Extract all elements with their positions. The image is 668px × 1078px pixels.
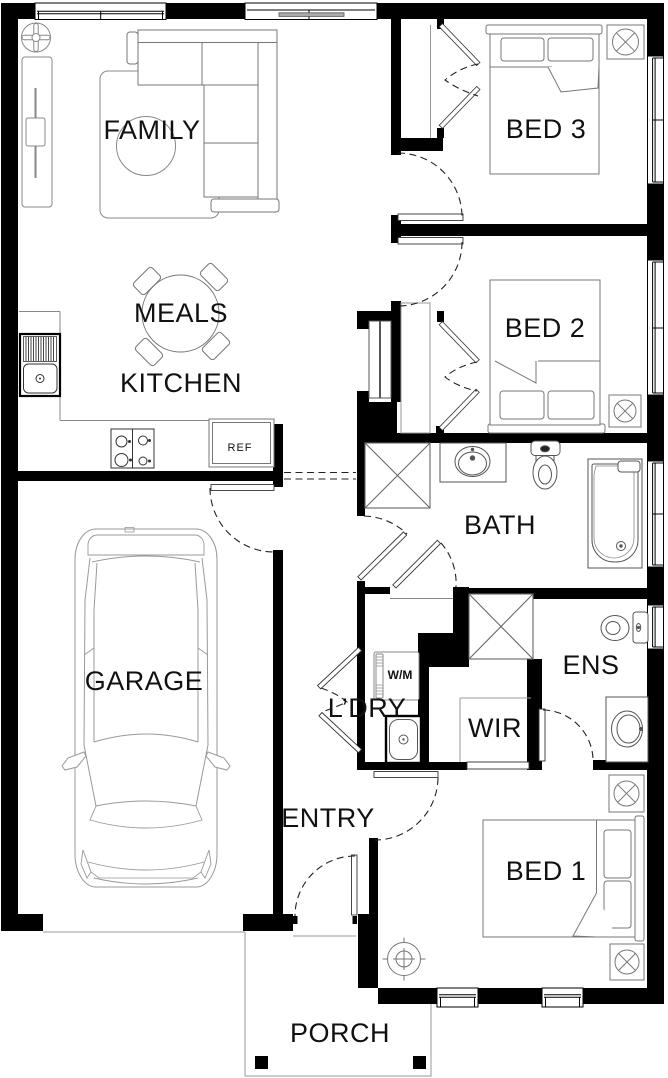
svg-text:GARAGE: GARAGE	[85, 666, 204, 696]
svg-text:BATH: BATH	[464, 510, 536, 540]
svg-text:ENTRY: ENTRY	[281, 803, 375, 833]
svg-text:L’DRY: L’DRY	[328, 693, 407, 723]
svg-text:PORCH: PORCH	[290, 1018, 390, 1048]
svg-text:FAMILY: FAMILY	[103, 115, 200, 145]
svg-text:MEALS: MEALS	[134, 298, 228, 328]
svg-text:WIR: WIR	[468, 713, 522, 743]
svg-text:BED 2: BED 2	[505, 313, 586, 343]
svg-text:ENS: ENS	[562, 650, 619, 680]
svg-text:W/M: W/M	[388, 668, 413, 682]
svg-text:BED 1: BED 1	[506, 856, 587, 886]
svg-text:REF: REF	[228, 442, 253, 454]
svg-text:BED 3: BED 3	[506, 114, 587, 144]
svg-text:KITCHEN: KITCHEN	[120, 368, 242, 398]
